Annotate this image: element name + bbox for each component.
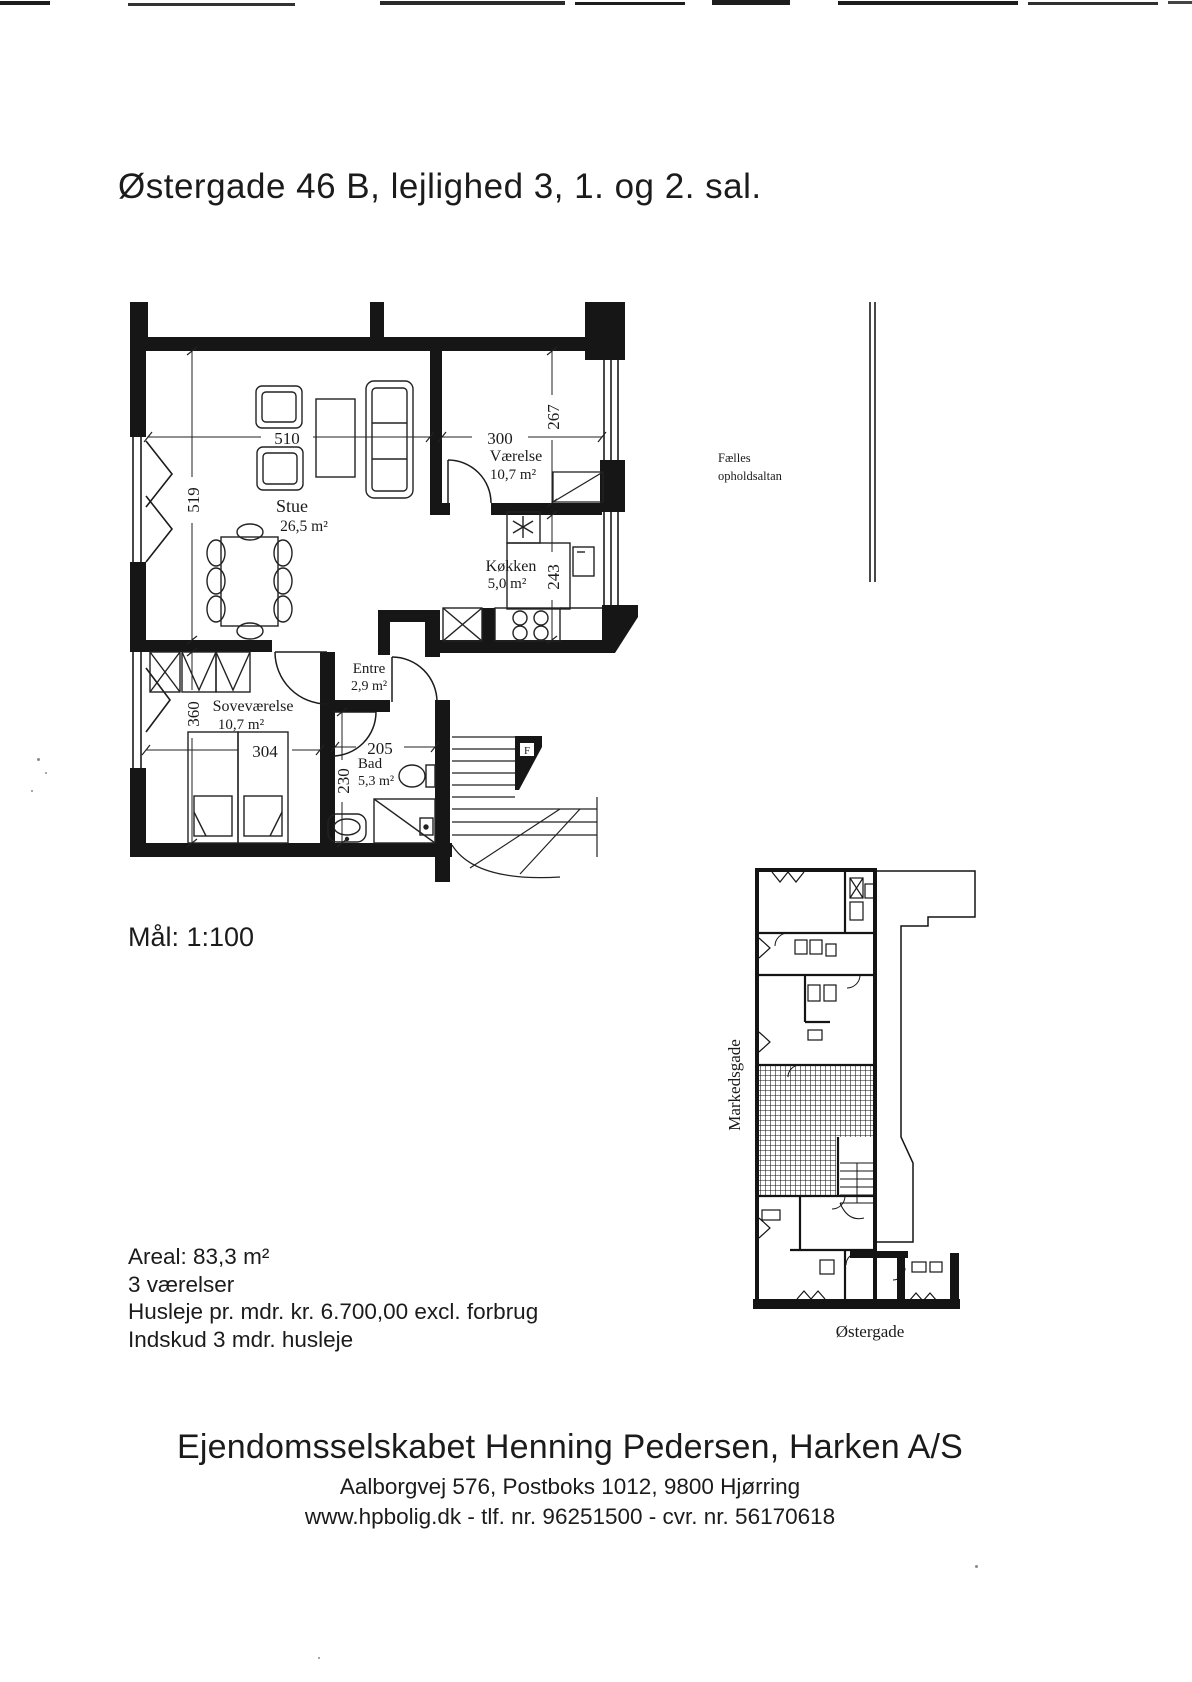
room-label-vaerelse: Værelse [490,448,542,465]
balcony-note-line2: opholdsaltan [718,469,783,483]
room-label-koekken: Køkken [486,558,537,575]
street-label-oestergade: Østergade [836,1322,905,1341]
scanned-flyer-page: Østergade 46 B, lejlighed 3, 1. og 2. sa… [0,0,1192,1682]
scan-speck [975,1565,978,1568]
balcony-note: Fælles opholdsaltan [718,451,783,483]
scan-speck [45,772,47,774]
footer: Ejendomsselskabet Henning Pedersen, Hark… [70,1428,1070,1530]
page-title: Østergade 46 B, lejlighed 3, 1. og 2. sa… [118,167,762,207]
fact-area: Areal: 83,3 m² [128,1243,538,1271]
room-area-sovevaerelse: 10,7 m² [218,717,265,733]
room-label-sovevaerelse: Soveværelse [213,698,294,715]
scale-label: Mål: 1:100 [128,922,254,953]
fact-rent: Husleje pr. mdr. kr. 6.700,00 excl. forb… [128,1298,538,1326]
balcony-divider-line [870,302,875,582]
footer-address: Aalborgvej 576, Postboks 1012, 9800 Hjør… [70,1474,1070,1500]
floor-plan-drawing: F [110,295,910,890]
room-label-entre: Entre [353,661,386,677]
stair-direction-mark: F [524,745,530,757]
scan-speck [37,758,40,761]
dimension-label-stue-depth: 519 [184,487,203,513]
dimension-label-sovevaerelse-depth: 360 [184,701,203,727]
vaerelse-desk [553,472,603,502]
property-facts: Areal: 83,3 m² 3 værelser Husleje pr. md… [128,1243,538,1353]
room-area-vaerelse: 10,7 m² [490,467,537,483]
site-plan-stairs [840,1163,874,1219]
footer-company: Ejendomsselskabet Henning Pedersen, Hark… [70,1428,1070,1467]
room-area-bad: 5,3 m² [358,774,394,789]
fact-deposit: Indskud 3 mdr. husleje [128,1326,538,1354]
fact-rooms: 3 værelser [128,1271,538,1299]
dimension-label-vaerelse-window: 267 [544,404,563,430]
room-label-stue: Stue [276,496,308,516]
scan-speck [31,790,33,792]
floor-plan-walls [130,302,638,882]
room-label-bad: Bad [358,756,383,772]
room-area-stue: 26,5 m² [280,518,328,535]
scan-speck [318,1657,320,1659]
site-plan-building [753,870,975,1309]
highlighted-apartment-hatch [759,1137,836,1196]
footer-contact: www.hpbolig.dk - tlf. nr. 96251500 - cvr… [70,1504,1070,1530]
room-area-koekken: 5,0 m² [488,576,527,592]
room-area-entre: 2,9 m² [351,679,387,694]
balcony-note-line1: Fælles [718,451,751,465]
living-room-furniture [207,381,413,639]
dimension-label-stue-width: 510 [274,429,300,448]
site-plan-drawing: Markedsgade Østergade [660,855,1080,1355]
highlighted-apartment-hatch [759,1065,875,1137]
dimension-label-bad-depth: 230 [334,768,353,794]
dimension-label-sovevaerelse-width: 304 [252,742,278,761]
dimension-label-koekken-depth: 243 [544,564,563,590]
dimension-label-vaerelse-width: 300 [487,429,513,448]
street-label-markedsgade: Markedsgade [725,1039,744,1131]
